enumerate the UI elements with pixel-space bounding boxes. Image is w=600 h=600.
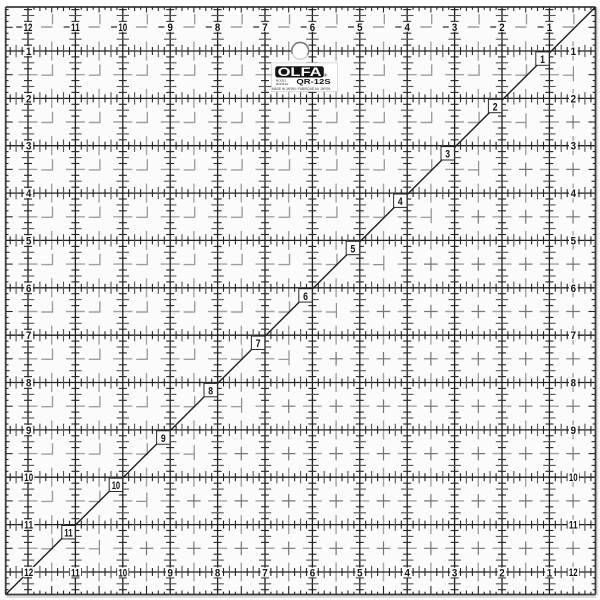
svg-text:1: 1 <box>26 46 31 58</box>
svg-text:MODÈLE: MODÈLE <box>276 81 289 86</box>
svg-text:12: 12 <box>24 567 33 579</box>
svg-text:8: 8 <box>215 22 220 34</box>
svg-text:10: 10 <box>118 22 127 34</box>
svg-text:10: 10 <box>24 472 33 484</box>
svg-text:7: 7 <box>256 338 261 350</box>
svg-text:8: 8 <box>26 378 31 390</box>
svg-text:1: 1 <box>571 46 576 58</box>
svg-text:6: 6 <box>303 291 308 303</box>
svg-text:6: 6 <box>571 283 576 295</box>
svg-text:4: 4 <box>571 188 576 200</box>
svg-text:4: 4 <box>405 568 410 580</box>
svg-text:7: 7 <box>262 22 267 34</box>
svg-text:5: 5 <box>351 243 356 255</box>
svg-text:1: 1 <box>547 22 552 34</box>
svg-text:11: 11 <box>71 22 80 34</box>
svg-text:5: 5 <box>357 568 362 580</box>
svg-text:2: 2 <box>571 93 576 105</box>
svg-text:4: 4 <box>398 196 403 208</box>
svg-text:4: 4 <box>26 188 31 200</box>
svg-text:7: 7 <box>571 330 576 342</box>
svg-text:10: 10 <box>569 472 578 484</box>
svg-text:7: 7 <box>26 330 31 342</box>
svg-text:5: 5 <box>26 235 31 247</box>
svg-text:11: 11 <box>71 568 80 580</box>
svg-text:11: 11 <box>569 520 578 532</box>
svg-text:11: 11 <box>64 528 72 540</box>
svg-text:3: 3 <box>445 149 450 161</box>
svg-text:12: 12 <box>569 567 578 579</box>
svg-text:5: 5 <box>357 22 362 34</box>
svg-text:12: 12 <box>24 22 33 34</box>
svg-text:2: 2 <box>493 101 498 113</box>
svg-text:9: 9 <box>161 433 166 445</box>
svg-text:9: 9 <box>168 568 173 580</box>
svg-text:11: 11 <box>24 520 33 532</box>
svg-text:MADE IN JAPAN / FABRIQUÉ AU JA: MADE IN JAPAN / FABRIQUÉ AU JAPON <box>272 86 331 91</box>
svg-text:7: 7 <box>262 568 267 580</box>
svg-text:10: 10 <box>118 568 127 580</box>
svg-text:2: 2 <box>26 93 31 105</box>
svg-text:2: 2 <box>499 568 504 580</box>
svg-text:3: 3 <box>452 22 457 34</box>
svg-text:9: 9 <box>168 22 173 34</box>
svg-text:3: 3 <box>26 141 31 153</box>
svg-text:9: 9 <box>26 425 31 437</box>
svg-text:3: 3 <box>571 141 576 153</box>
svg-text:3: 3 <box>452 568 457 580</box>
svg-text:10: 10 <box>112 480 120 492</box>
svg-text:5: 5 <box>571 235 576 247</box>
svg-text:6: 6 <box>310 568 315 580</box>
svg-text:4: 4 <box>405 22 410 34</box>
svg-text:6: 6 <box>310 22 315 34</box>
svg-text:8: 8 <box>571 378 576 390</box>
svg-text:1: 1 <box>540 54 545 66</box>
svg-text:8: 8 <box>208 386 213 398</box>
svg-text:9: 9 <box>571 425 576 437</box>
svg-text:6: 6 <box>26 283 31 295</box>
svg-text:8: 8 <box>215 568 220 580</box>
svg-text:QR-12S: QR-12S <box>296 77 330 86</box>
svg-text:2: 2 <box>499 22 504 34</box>
svg-text:1: 1 <box>547 568 552 580</box>
